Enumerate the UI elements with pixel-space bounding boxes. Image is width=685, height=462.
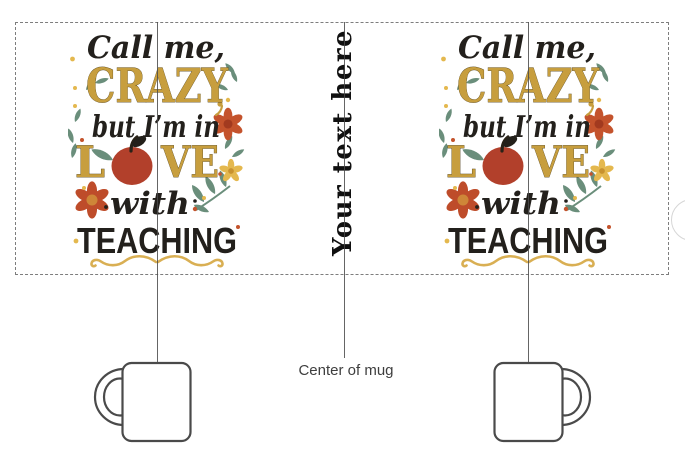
guide-line-center [344, 22, 345, 358]
center-of-mug-label: Center of mug [270, 362, 422, 379]
guide-line-right [528, 22, 529, 362]
mug-outline-right [492, 357, 594, 443]
design-copy-left[interactable]: Call me, CRAZY but I’m in L VE with TEAC… [68, 28, 248, 274]
design-text-love-l: L [75, 138, 105, 188]
design-copy-right[interactable]: Call me, CRAZY but I’m in L VE with TEAC… [439, 28, 619, 274]
side-panel-button[interactable] [671, 199, 685, 241]
design-text-love-ve: VE [160, 138, 219, 188]
mug-design-canvas: Call me, CRAZY but I’m in L VE with TEAC… [0, 0, 685, 462]
design-text-love-l: L [446, 138, 476, 188]
guide-line-left [157, 22, 158, 362]
design-text-love-ve: VE [531, 138, 590, 188]
mug-body [123, 363, 191, 441]
design-text-with: with [110, 186, 190, 222]
design-text-with: with [481, 186, 561, 222]
mug-body [495, 363, 563, 441]
mug-outline-left [91, 357, 193, 443]
